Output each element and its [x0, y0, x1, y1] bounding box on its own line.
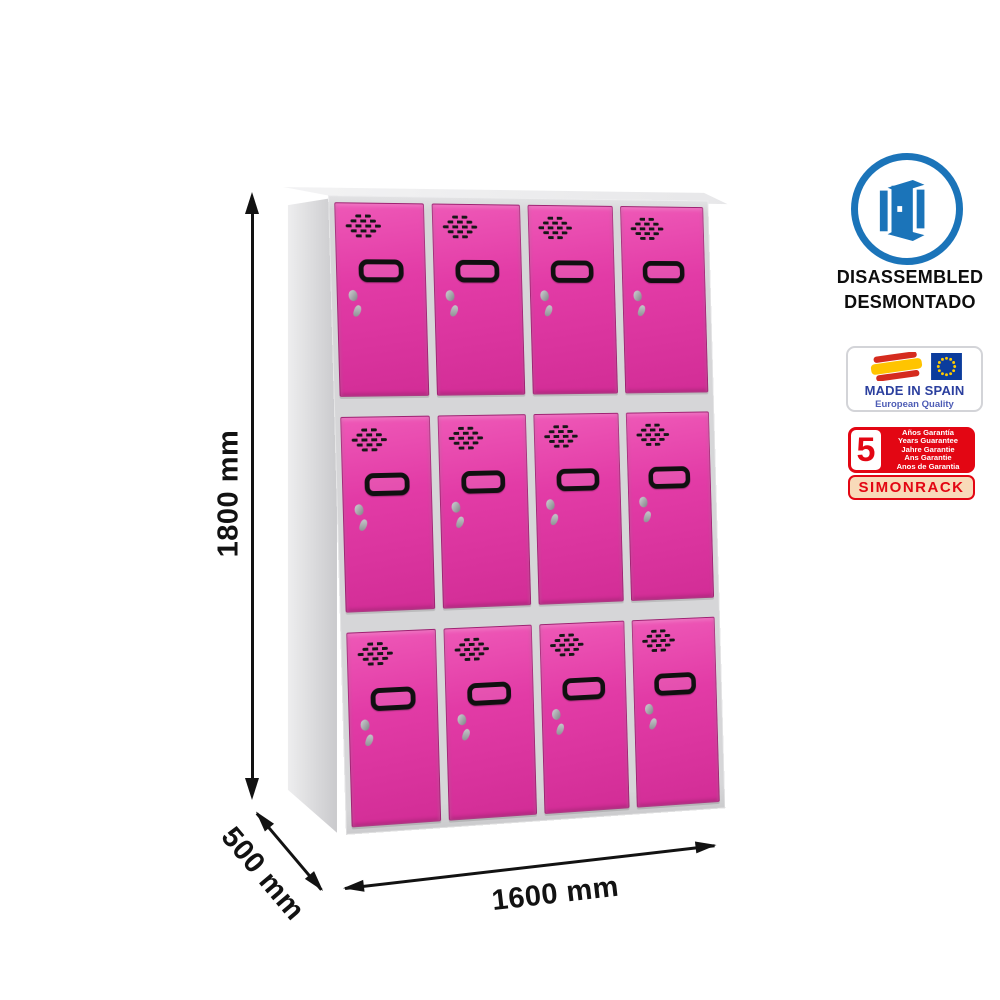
- locker-door: [340, 416, 435, 612]
- door-lock: [540, 290, 552, 316]
- door-handle: [642, 261, 684, 283]
- door-lock: [633, 291, 645, 317]
- depth-dimension-label: 500 mm: [214, 821, 311, 927]
- door-lock: [452, 502, 464, 529]
- guarantee-badge: 5 Años Garantía Years Guarantee Jahre Ga…: [848, 427, 975, 500]
- door-lock: [354, 505, 367, 532]
- product-image: 1800 mm 500 mm 1600 mm DISASSEMBLED DESM…: [0, 0, 1000, 1000]
- locker-door: [346, 628, 441, 827]
- door-lock: [446, 290, 458, 317]
- made-in-spain-badge: MADE IN SPAIN European Quality: [846, 346, 983, 412]
- cabinet-front-face: [328, 195, 725, 835]
- locker-door: [527, 205, 618, 395]
- disassembled-badge: [851, 153, 963, 265]
- guarantee-brand: SIMONRACK: [848, 475, 975, 500]
- door-vents-icon: [628, 215, 665, 241]
- door-vents-icon: [548, 631, 586, 659]
- door-handle: [359, 259, 404, 282]
- open-door-icon: [876, 173, 938, 245]
- door-handle: [648, 466, 690, 489]
- door-lock: [552, 708, 564, 735]
- door-handle: [550, 260, 593, 282]
- door-lock: [645, 703, 657, 730]
- door-vents-icon: [542, 423, 580, 450]
- door-vents-icon: [355, 640, 395, 669]
- door-handle: [562, 676, 605, 700]
- door-handle: [654, 672, 696, 696]
- door-handle: [467, 681, 511, 706]
- height-dimension-line: [251, 213, 254, 779]
- spain-flag-icon: [868, 352, 924, 381]
- width-dimension-label: 1600 mm: [490, 871, 621, 918]
- locker-door: [432, 204, 525, 397]
- arrowhead-right-icon: [695, 839, 717, 853]
- door-vents-icon: [441, 213, 480, 240]
- locker-door: [444, 624, 537, 820]
- door-handle: [365, 473, 410, 497]
- door-handle: [556, 468, 599, 491]
- made-in-spain-subtitle: European Quality: [875, 399, 954, 410]
- guarantee-number: 5: [851, 430, 881, 470]
- door-lock: [348, 290, 361, 317]
- arrowhead-up-icon: [245, 192, 259, 214]
- door-handle: [371, 686, 416, 711]
- door-lock: [546, 499, 558, 526]
- arrowhead-right-icon: [305, 871, 328, 895]
- door-lock: [639, 497, 651, 523]
- door-vents-icon: [343, 212, 383, 239]
- height-dimension-label: 1800 mm: [213, 413, 246, 575]
- arrowhead-left-icon: [342, 880, 364, 894]
- locker-door: [533, 413, 624, 604]
- disassembled-label-en: DISASSEMBLED: [819, 267, 1000, 288]
- arrowhead-down-icon: [245, 778, 259, 800]
- guarantee-lines: Años Garantía Years Guarantee Jahre Gara…: [884, 430, 972, 470]
- door-vents-icon: [447, 425, 486, 452]
- width-dimension-arrow: 1600 mm: [345, 844, 715, 889]
- door-handle: [456, 260, 500, 283]
- disassembled-label-es: DESMONTADO: [819, 292, 1000, 313]
- locker-door: [334, 202, 429, 397]
- locker-door: [620, 206, 709, 394]
- door-lock: [457, 714, 469, 741]
- door-vents-icon: [349, 426, 389, 454]
- door-handle: [461, 471, 505, 495]
- made-in-spain-title: MADE IN SPAIN: [865, 383, 965, 398]
- flags-row: [868, 352, 962, 381]
- door-vents-icon: [536, 214, 574, 241]
- locker-door: [631, 616, 719, 807]
- eu-flag-icon: [931, 353, 962, 380]
- guarantee-line: Anos de Garantia: [884, 463, 972, 472]
- door-vents-icon: [453, 636, 492, 664]
- arrowhead-left-icon: [251, 808, 274, 832]
- locker-door: [626, 412, 714, 601]
- locker-door: [539, 620, 630, 814]
- depth-dimension-arrow: 500 mm: [256, 812, 322, 890]
- door-vents-icon: [640, 627, 677, 655]
- guarantee-years-panel: 5 Años Garantía Years Guarantee Jahre Ga…: [848, 427, 975, 473]
- door-lock: [360, 719, 373, 747]
- door-vents-icon: [634, 422, 671, 449]
- locker-door: [438, 414, 531, 608]
